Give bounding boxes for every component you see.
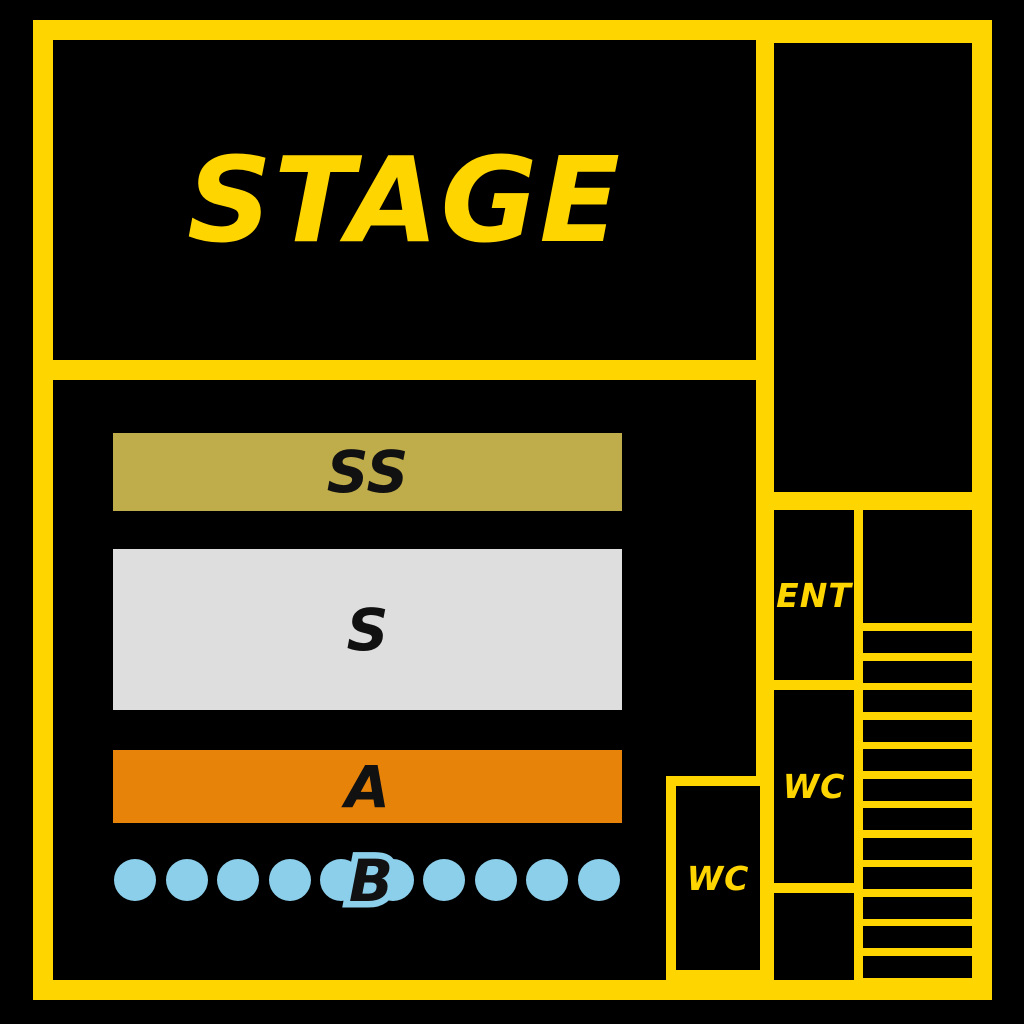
section-ss-label: SS xyxy=(327,443,408,501)
stair-step xyxy=(863,897,972,919)
stair-step xyxy=(863,956,972,978)
wc-right-room: WC xyxy=(774,690,854,883)
section-b-label: B xyxy=(349,847,393,915)
stair-step xyxy=(863,661,972,683)
stair-step xyxy=(863,749,972,771)
section-s[interactable]: S xyxy=(113,549,622,710)
stair-step xyxy=(863,690,972,712)
right-wing: ENT WC xyxy=(774,40,972,980)
stage-front-wall xyxy=(53,360,756,380)
stair-step xyxy=(863,720,972,742)
section-ss[interactable]: SS xyxy=(113,433,622,511)
stairs-steps xyxy=(863,40,972,980)
venue-seating-map: STAGE ENT WC SS S A B WC xyxy=(0,0,1024,1024)
entrance-room: ENT xyxy=(774,510,854,680)
seat[interactable] xyxy=(526,859,568,901)
wc-right-label: WC xyxy=(783,770,846,803)
unlabeled-room xyxy=(774,893,854,980)
seat[interactable] xyxy=(475,859,517,901)
seat[interactable] xyxy=(217,859,259,901)
wc-left-room: WC xyxy=(666,776,770,980)
stair-step xyxy=(863,838,972,860)
stair-step xyxy=(863,808,972,830)
stair-step xyxy=(863,867,972,889)
entrance-label: ENT xyxy=(776,579,852,612)
stage-label: STAGE xyxy=(187,141,622,259)
section-b-label-badge: B xyxy=(326,848,416,912)
section-a-label: A xyxy=(345,758,390,816)
stage-area: STAGE xyxy=(53,40,756,360)
section-a[interactable]: A xyxy=(113,750,622,823)
seat[interactable] xyxy=(166,859,208,901)
seat[interactable] xyxy=(269,859,311,901)
wc-left-label: WC xyxy=(687,862,750,895)
stair-step xyxy=(863,926,972,948)
seat[interactable] xyxy=(423,859,465,901)
stair-step xyxy=(863,779,972,801)
section-s-label: S xyxy=(347,601,389,659)
seat[interactable] xyxy=(578,859,620,901)
seat[interactable] xyxy=(114,859,156,901)
stair-step xyxy=(863,631,972,653)
